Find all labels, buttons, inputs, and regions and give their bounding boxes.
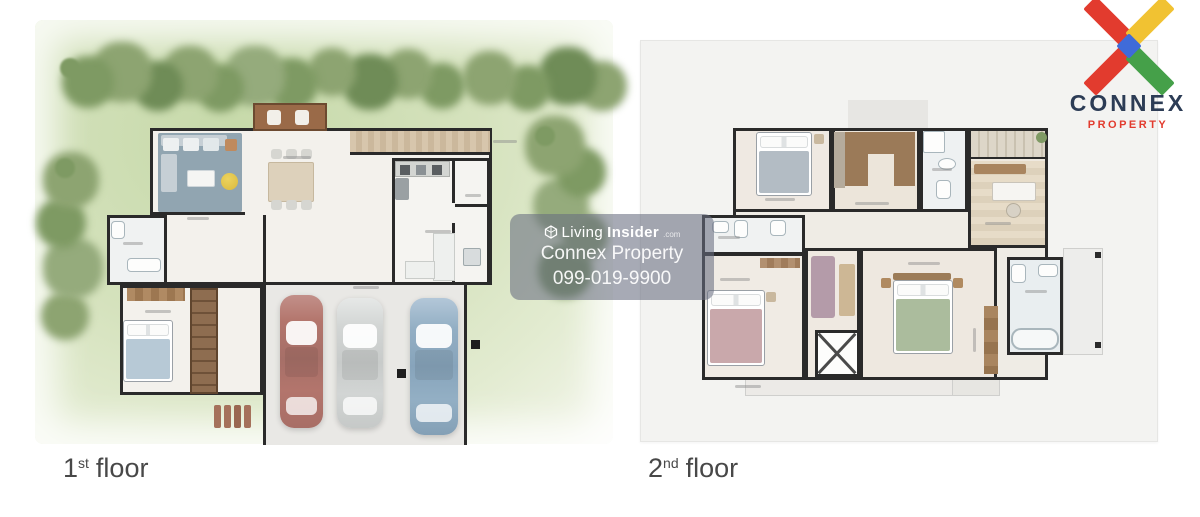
porch-bench bbox=[253, 103, 327, 131]
room-label bbox=[465, 194, 481, 197]
sink-icon bbox=[712, 221, 729, 233]
car-roof bbox=[415, 350, 453, 380]
balcony-corner-icon bbox=[1095, 252, 1101, 258]
toilet-icon bbox=[936, 180, 951, 199]
room-label bbox=[123, 242, 143, 245]
sink-icon bbox=[1038, 264, 1058, 277]
kitchen-wall bbox=[452, 158, 455, 203]
nightstand bbox=[814, 134, 824, 144]
double-sink-icon bbox=[127, 258, 161, 272]
side-table bbox=[225, 139, 237, 151]
room-label bbox=[1025, 290, 1047, 293]
watermark-phone: 099-019-9900 bbox=[553, 268, 671, 290]
floor-ordinal: nd bbox=[663, 455, 679, 471]
living-insider-logo-icon bbox=[544, 225, 558, 239]
room-label bbox=[187, 217, 209, 220]
room-label bbox=[720, 278, 750, 281]
watermark-brand-light: Living bbox=[562, 225, 604, 240]
cabinet bbox=[834, 132, 845, 188]
bed-3 bbox=[707, 290, 765, 366]
first-floor-caption: 1stfloor bbox=[63, 453, 148, 484]
rear-window bbox=[343, 397, 377, 415]
room-label bbox=[283, 156, 311, 159]
room-label bbox=[908, 262, 940, 265]
rear-window bbox=[416, 404, 452, 422]
rear-balcony bbox=[745, 380, 957, 396]
bench-cushion-icon bbox=[267, 110, 281, 125]
brand-tagline: PROPERTY bbox=[1058, 119, 1198, 131]
ledge bbox=[952, 380, 1000, 396]
wardrobe bbox=[984, 306, 998, 374]
floor-word: floor bbox=[96, 453, 149, 483]
stove-sink-icon bbox=[400, 165, 410, 175]
staircase bbox=[190, 288, 218, 394]
windshield bbox=[416, 324, 452, 348]
room-label bbox=[973, 328, 976, 352]
blanket bbox=[896, 299, 950, 351]
car-red bbox=[280, 295, 323, 428]
watermark-brand-suffix: .com bbox=[663, 231, 680, 239]
staircase bbox=[971, 131, 1045, 159]
page: LivingInsider.com Connex Property 099-01… bbox=[0, 0, 1200, 517]
sofa-chaise bbox=[161, 154, 177, 192]
windshield bbox=[286, 321, 317, 345]
room-label bbox=[493, 140, 517, 143]
nightstand bbox=[766, 292, 776, 302]
desk-chair bbox=[1006, 203, 1021, 218]
shower-icon bbox=[770, 220, 786, 236]
car-roof bbox=[342, 350, 378, 380]
dining-chairs-icon bbox=[271, 149, 282, 159]
tree-row-top-icon bbox=[60, 58, 80, 78]
floor-number: 1 bbox=[63, 453, 78, 483]
kitchen-counter bbox=[395, 161, 450, 177]
rear-window bbox=[286, 397, 317, 415]
cabinet bbox=[839, 264, 855, 316]
nightstand bbox=[881, 278, 891, 288]
garden-planks-icon bbox=[214, 405, 221, 428]
bed-4 bbox=[123, 320, 173, 382]
tree-column-left-icon bbox=[55, 158, 75, 178]
floor-ordinal: st bbox=[78, 455, 89, 471]
blanket bbox=[710, 309, 762, 363]
room-label bbox=[855, 202, 889, 205]
room-label bbox=[765, 198, 795, 201]
connex-logo: CONNEX PROPERTY bbox=[1058, 6, 1198, 131]
watermark-brand-bold: Insider bbox=[607, 225, 659, 240]
pillows-icon bbox=[897, 284, 949, 296]
island-counter bbox=[405, 261, 435, 279]
room-label bbox=[718, 236, 740, 239]
pillows-icon bbox=[711, 294, 761, 306]
shelf bbox=[974, 164, 1026, 174]
pillows-icon bbox=[127, 324, 169, 336]
side-balcony bbox=[1063, 248, 1103, 355]
nightstand bbox=[953, 278, 963, 288]
sofa-cushions-icon bbox=[163, 138, 179, 151]
car-blue bbox=[410, 298, 458, 435]
bathtub-icon bbox=[1011, 328, 1059, 350]
pillows-icon bbox=[760, 136, 808, 148]
room-label bbox=[985, 222, 1011, 225]
cabinet bbox=[811, 256, 835, 318]
wardrobe bbox=[760, 258, 800, 268]
second-floor-caption: 2ndfloor bbox=[648, 453, 738, 484]
u-shaped-wardrobe bbox=[845, 132, 915, 186]
connex-x-mark-icon bbox=[1076, 6, 1180, 88]
floor-number: 2 bbox=[648, 453, 663, 483]
island-counter bbox=[433, 233, 455, 281]
room-label bbox=[425, 230, 451, 233]
car-silver bbox=[337, 298, 383, 428]
headboard bbox=[893, 273, 951, 280]
fridge bbox=[395, 178, 409, 200]
room-label bbox=[145, 310, 171, 313]
washer bbox=[463, 248, 481, 266]
roof-ledge bbox=[848, 100, 928, 128]
interior-wall bbox=[263, 215, 266, 282]
windshield bbox=[343, 324, 377, 348]
interior-wall bbox=[150, 212, 245, 215]
utility-wall bbox=[455, 204, 490, 207]
bed-1 bbox=[893, 280, 953, 354]
desk bbox=[992, 182, 1036, 201]
room-label bbox=[353, 286, 379, 289]
tree-column-right-icon bbox=[535, 126, 555, 146]
toilet-icon bbox=[1011, 264, 1026, 283]
rear-terrace-decking bbox=[350, 131, 490, 155]
plant-icon bbox=[1036, 132, 1047, 143]
watermark: LivingInsider.com Connex Property 099-01… bbox=[510, 214, 714, 300]
bed-2 bbox=[756, 132, 812, 196]
watermark-brand-row: LivingInsider.com bbox=[544, 225, 681, 240]
floor-word: floor bbox=[686, 453, 739, 483]
coffee-table bbox=[187, 170, 215, 187]
wardrobe bbox=[127, 288, 185, 301]
stair-void bbox=[815, 330, 860, 377]
room-label bbox=[932, 168, 952, 171]
wardrobe-opening bbox=[868, 154, 894, 186]
shower-icon bbox=[923, 131, 945, 153]
blanket bbox=[126, 339, 170, 379]
round-table bbox=[221, 173, 238, 190]
brand-name: CONNEX bbox=[1058, 90, 1198, 117]
toilet-icon bbox=[111, 221, 125, 239]
dining-table bbox=[268, 162, 314, 202]
watermark-company: Connex Property bbox=[541, 243, 684, 265]
room-label bbox=[735, 385, 761, 388]
blanket bbox=[759, 151, 809, 193]
car-roof bbox=[285, 347, 318, 377]
